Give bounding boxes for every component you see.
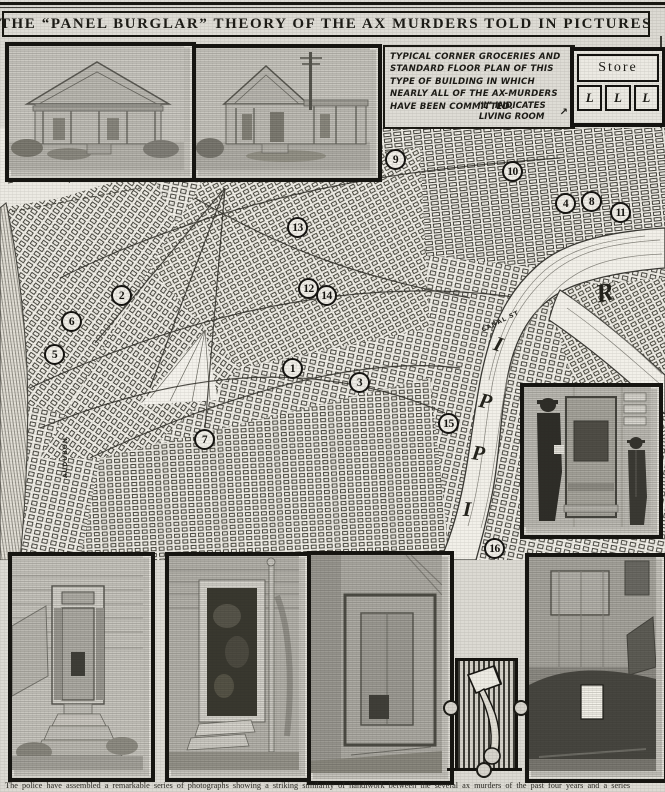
living-room-note-text: “L” INDICATES LIVING ROOM bbox=[466, 101, 558, 123]
photo-door-panel-light bbox=[525, 553, 665, 783]
photo-chiseled-door-1 bbox=[8, 552, 155, 782]
photo-interior-hall bbox=[307, 551, 454, 785]
right-knob-icon bbox=[513, 700, 529, 716]
photo-corner-grocery-1 bbox=[5, 42, 196, 182]
ax-illustration-panel bbox=[455, 658, 518, 771]
arrow-icon: ↗ bbox=[560, 107, 568, 118]
top-rule-thin bbox=[0, 7, 665, 8]
interior-panel-sketch bbox=[529, 557, 656, 771]
left-knob-icon bbox=[443, 700, 459, 716]
photo-open-doorway bbox=[165, 552, 311, 782]
store-cell: Store bbox=[577, 54, 659, 82]
doorway-sketch-2 bbox=[169, 556, 299, 770]
top-rule bbox=[0, 2, 665, 5]
house-sketch-2 bbox=[196, 48, 370, 170]
bottom-knob-icon bbox=[476, 762, 492, 778]
bottom-caption: The police have assembled a remarkable s… bbox=[5, 781, 660, 790]
living-room-cell: L bbox=[577, 85, 602, 111]
living-room-cell: L bbox=[634, 85, 659, 111]
photo-corner-grocery-2 bbox=[192, 44, 382, 182]
house-sketch-1 bbox=[9, 46, 184, 170]
newspaper-page: THE “PANEL BURGLAR” THEORY OF THE AX MUR… bbox=[0, 0, 665, 792]
photo-detectives-door bbox=[520, 383, 663, 539]
doorway-sketch-1 bbox=[12, 556, 143, 770]
living-room-cell: L bbox=[605, 85, 630, 111]
hallway-sketch bbox=[311, 555, 442, 773]
ax-icon bbox=[458, 661, 515, 768]
floor-plan-diagram: Store L L L bbox=[570, 47, 665, 127]
page-title: THE “PANEL BURGLAR” THEORY OF THE AX MUR… bbox=[0, 16, 652, 33]
page-title-banner: THE “PANEL BURGLAR” THEORY OF THE AX MUR… bbox=[2, 11, 650, 37]
living-room-row: L L L bbox=[577, 85, 659, 111]
detectives-sketch bbox=[524, 387, 651, 527]
floorplan-caption-box: TYPICAL CORNER GROCERIES AND STANDARD FL… bbox=[383, 45, 575, 129]
